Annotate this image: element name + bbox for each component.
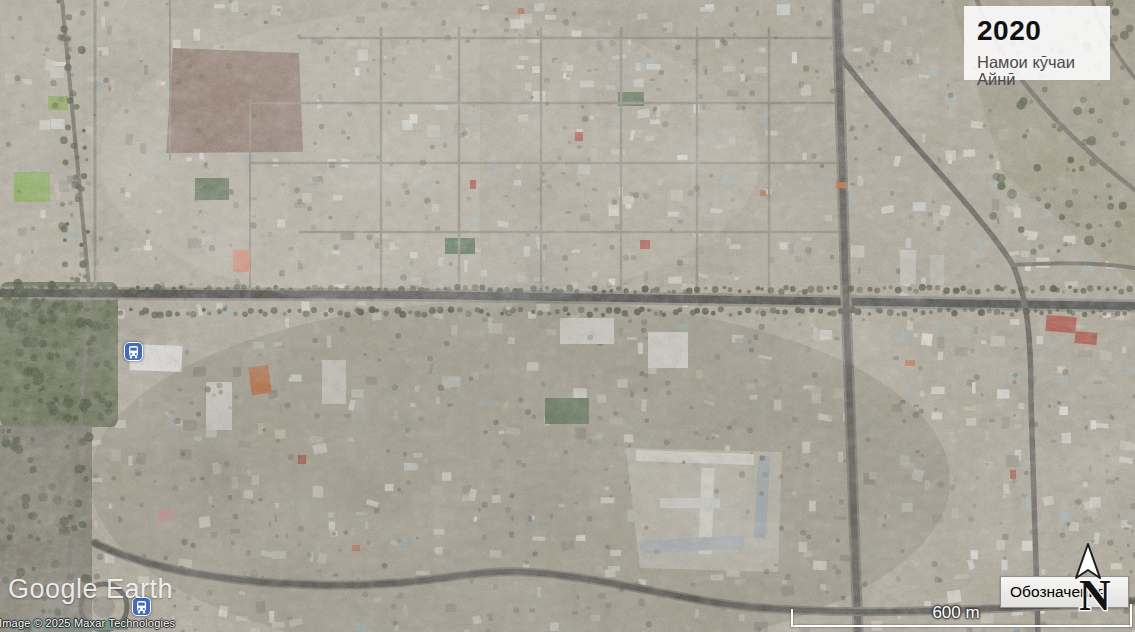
transit-station-marker[interactable] [124,342,143,361]
timeline-year-card: 2020 Намои кӯчаи Айнӣ [964,6,1110,80]
google-earth-logo: Google Earth [8,574,173,605]
scale-bar-line [791,625,1132,627]
google-earth-viewport: 2020 Намои кӯчаи Айнӣ Google Earth Image… [0,0,1135,632]
scale-bar-right-tick [1130,604,1132,627]
year-label: 2020 [977,17,1110,45]
compass-n-label: N [1079,571,1111,620]
place-caption: Намои кӯчаи Айнӣ [977,54,1110,87]
bus-icon [125,343,142,360]
imagery-copyright: Image © 2025 Maxar Technologies [0,617,175,629]
compass-north-indicator: N [1062,538,1128,624]
light-vignette [100,10,760,310]
satellite-map[interactable] [0,0,1135,632]
